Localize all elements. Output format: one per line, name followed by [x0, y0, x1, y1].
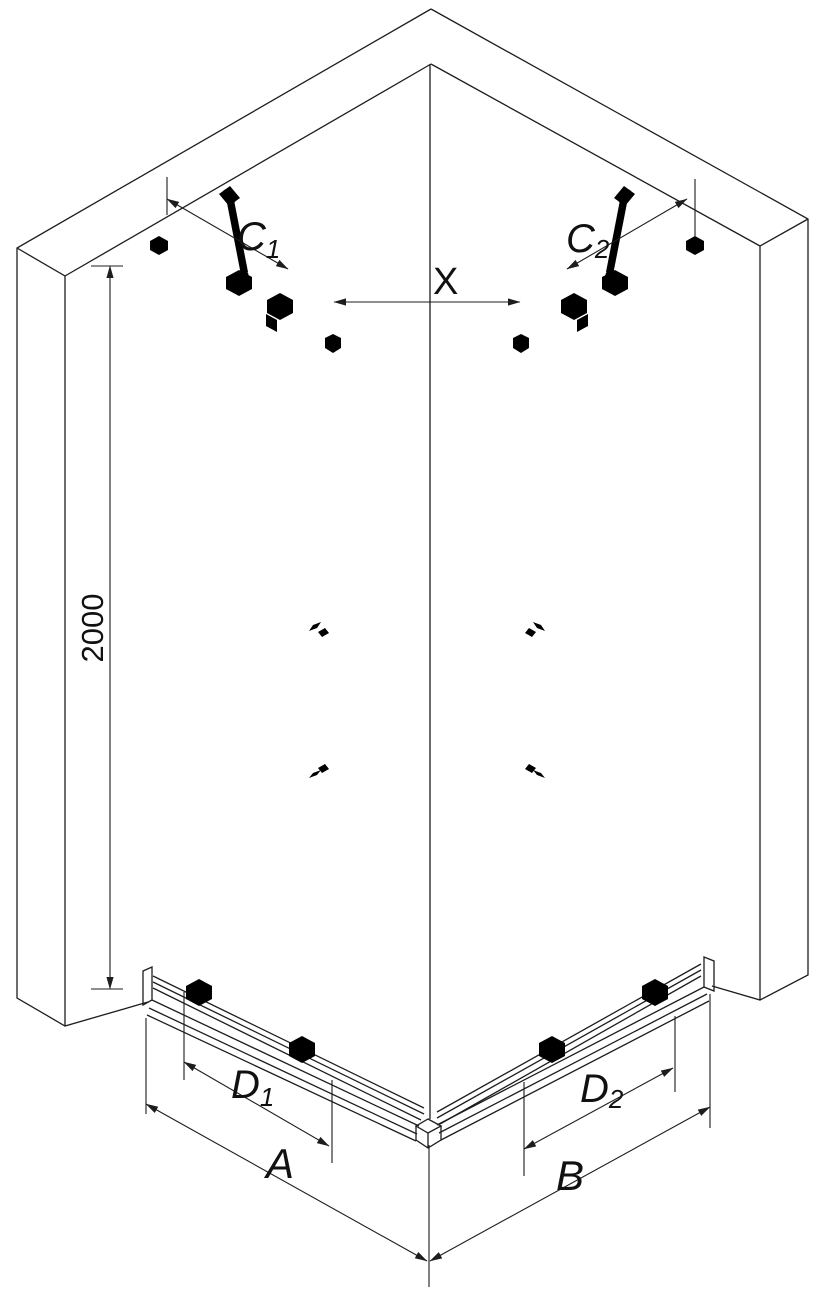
- dim-a-label: A: [263, 1140, 294, 1187]
- dim-b-label: B: [556, 1152, 584, 1199]
- dim-height-label: 2000: [75, 594, 110, 663]
- shower-enclosure-technical-drawing: 2000 C1 C2 X D1 D2: [0, 0, 821, 1289]
- dim-x-label: X: [433, 261, 458, 303]
- drawing-background: [0, 0, 821, 1289]
